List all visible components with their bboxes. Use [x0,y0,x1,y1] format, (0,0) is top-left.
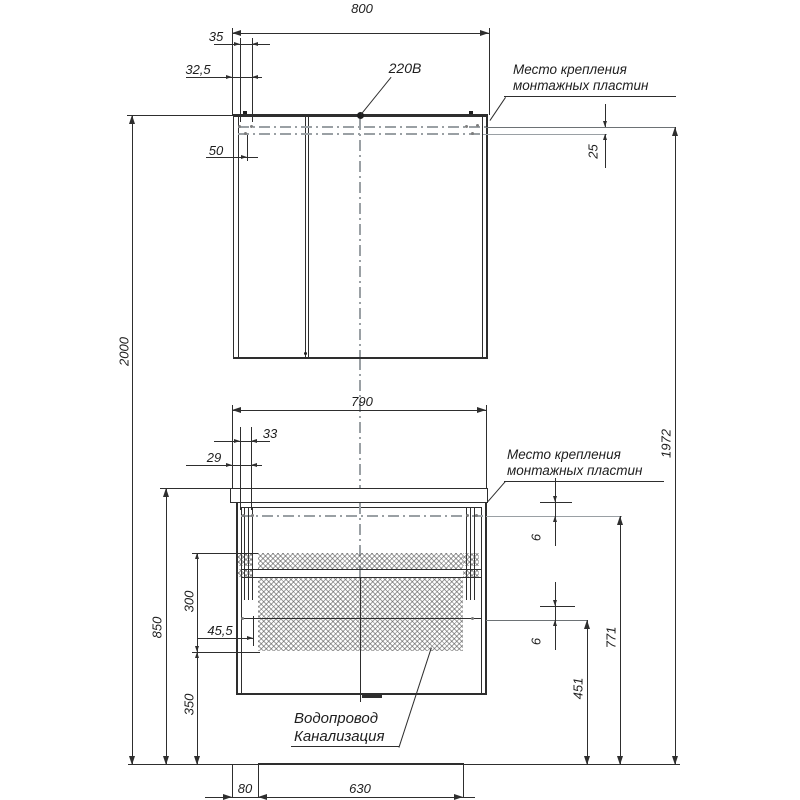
mirror-center-axis [359,119,361,357]
dim-label-vanity-offset-c: 45,5 [196,623,244,638]
leader-shelf [291,746,399,747]
extension-line [127,115,233,116]
arrow-up [553,516,557,522]
vanity-mount-axis [241,515,486,517]
vanity-mount-leader [488,481,507,502]
dim-label-clearance: 350 [182,685,197,725]
extension-line [240,427,241,510]
vanity-right-wall [485,503,487,695]
arrow-left [252,42,258,46]
leader-shelf [504,96,676,97]
utility-leader [398,648,432,748]
mirror-mount-dot [465,125,468,128]
dim-line-33 [214,441,270,442]
vanity-mount-dot [475,514,478,517]
utility-zone-hatch-upper [258,553,463,569]
drawer-side-hatch [237,553,253,566]
dim-label-drawer-zone: 300 [182,582,197,622]
dim-label-mount-upper: 771 [604,618,619,658]
dim-label-mirror-mount-height: 1972 [659,424,674,464]
arrow-up [584,620,590,629]
extension-line [486,405,487,488]
arrow-right [241,155,247,159]
extension-tick [192,553,258,554]
door-split-line [360,577,362,694]
dim-line-6-top [555,478,556,546]
dim-line-bottom [205,797,475,798]
dim-line-35 [214,44,270,45]
mirror-mount-label-line1: Место крепления [513,62,627,77]
utility-label-line2: Канализация [294,728,385,745]
dim-label-offset-c: 50 [198,143,234,158]
dim-line-45-5 [197,638,253,639]
dim-label-vanity-offset-b: 29 [196,450,232,465]
utility-label-line1: Водопровод [294,710,378,727]
drawer-side-hatch [463,569,479,577]
dim-label-total-height: 2000 [117,332,132,372]
dim-label-mirror-width: 800 [332,1,392,16]
mirror-cabinet-left-wall-inner [238,117,239,357]
vanity-mount-label-line2: монтажных пластин [507,463,642,478]
arrow-up [163,488,169,497]
vanity-mount-label-line1: Место крепления [507,447,621,462]
arrow-right [226,75,232,79]
vanity-mount-dot [466,514,469,517]
arrow-right [454,794,463,800]
arrow-up [603,134,607,140]
drawer-side-hatch [463,553,479,566]
extension-line [232,405,233,488]
extension-tick [192,652,260,653]
arrow-up [617,516,623,525]
mirror-door-divider [305,117,306,357]
dim-label-vanity-offset-a: 33 [252,426,288,441]
vanity-mount-dot [471,617,474,620]
reference-tick [540,502,572,503]
dim-label-vanity-width: 790 [332,394,392,409]
dim-line-2000 [132,115,133,765]
arrow-right [247,636,253,640]
extension-line [240,38,241,122]
dim-label-offset-a: 35 [198,29,234,44]
arrow-up [553,620,557,626]
dim-line-850 [166,488,167,765]
mirror-mount-axis-upper-extension [486,127,676,128]
vanity-left-wall [236,503,238,695]
power-leader-line [361,77,392,115]
drawer-rail-line [241,577,481,578]
extension-line [489,28,490,115]
extension-line [252,38,253,122]
dim-line-790 [232,410,486,411]
mirror-cabinet-right-wall [486,114,488,359]
vanity-mount-dot [251,514,254,517]
dim-label-gap-top: 6 [529,528,544,548]
vanity-body-top-line [241,507,481,508]
dim-label-vanity-height: 850 [150,608,165,648]
leader-shelf [504,481,664,482]
dim-line-350 [197,652,198,765]
dim-label-plate-gap: 25 [586,132,601,172]
drain-tick [362,695,382,698]
dim-line-6-bottom [555,582,556,650]
utility-zone-floor-segment [258,763,464,766]
arrow-right [234,439,240,443]
reference-line [253,616,254,646]
dim-label-gap-bottom: 6 [529,632,544,652]
installation-drawing: 800 35 32,5 50 220В Место крепления монт… [0,0,800,800]
arrow-up [195,652,199,658]
dim-line-32-5 [186,77,262,78]
dim-label-utility-zone-width: 630 [332,781,388,796]
mirror-mount-axis-upper [238,126,486,128]
mirror-mount-dot [238,125,241,128]
mirror-door-divider-2 [308,117,309,357]
reference-tick [540,606,575,607]
vanity-right-wall-inner [481,507,482,694]
mirror-divider-hinge-dot [304,352,307,355]
center-axis-between-units [359,359,361,488]
arrow-up [195,553,199,559]
arrow-up [672,127,678,136]
mirror-mount-dot [476,124,479,127]
mirror-mount-leader [490,97,507,121]
arrow-left [252,75,258,79]
arrow-right [477,407,486,413]
lower-mount-line [241,618,481,619]
extension-line [463,765,464,798]
arrow-left [251,463,257,467]
mirror-mount-tick-left [243,111,247,114]
mirror-cabinet-right-wall-inner [482,117,483,357]
drawer-rail-line [241,569,481,570]
lower-mount-extension [486,620,588,621]
dim-line-800 [232,33,489,34]
mirror-mount-axis-lower [238,133,483,135]
mirror-mount-tick-right [469,111,473,114]
mirror-mount-dot [250,125,253,128]
mirror-cabinet-bottom-edge [233,357,488,359]
arrow-down [553,600,557,606]
vanity-mount-dot [242,514,245,517]
drawer-side-hatch [237,569,253,577]
dim-label-offset-b: 32,5 [176,62,220,77]
vanity-mount-dot [241,617,244,620]
dim-line-451 [587,620,588,765]
vanity-left-wall-inner [241,507,242,694]
vanity-countertop [230,488,488,503]
dim-line-771 [620,516,621,765]
extension-line [160,488,230,489]
mirror-mount-label-line2: монтажных пластин [513,78,648,93]
arrow-down [553,496,557,502]
center-reference-tick [360,694,361,702]
power-label: 220В [380,60,430,76]
arrow-down [603,121,607,127]
arrow-left [232,407,241,413]
arrow-right [234,42,240,46]
arrow-right [480,30,489,36]
dim-label-bottom-offset: 80 [227,781,263,796]
arrow-up [129,115,135,124]
mirror-mount-dot [471,132,474,135]
dim-label-mount-lower: 451 [571,669,586,709]
dim-line-1972 [675,127,676,765]
